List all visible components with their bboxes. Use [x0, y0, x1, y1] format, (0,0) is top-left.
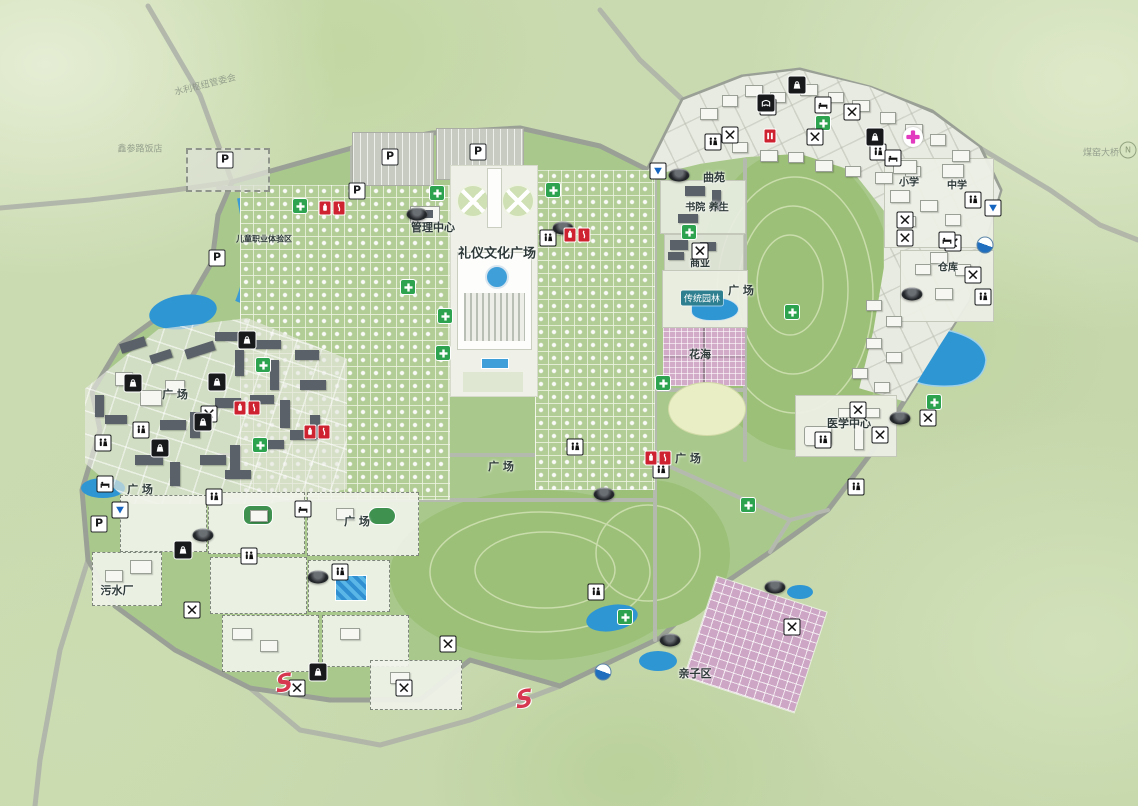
fire-safety-icon — [319, 201, 346, 216]
restroom-icon — [705, 134, 722, 151]
restaurant-icon — [807, 129, 824, 146]
restaurant-icon — [722, 127, 739, 144]
fire-safety-icon — [234, 401, 261, 416]
restaurant-icon — [850, 402, 867, 419]
hotel-icon — [939, 232, 956, 249]
building — [235, 350, 244, 376]
building — [874, 382, 890, 393]
building — [890, 190, 910, 203]
restroom-icon — [567, 439, 584, 456]
restaurant-icon — [784, 619, 801, 636]
axis-column — [487, 168, 502, 228]
service-parcel — [370, 660, 462, 710]
restaurant-icon — [897, 230, 914, 247]
restaurant-icon — [897, 212, 914, 229]
area-label: 礼仪文化广场 — [458, 243, 536, 262]
restroom-icon — [975, 289, 992, 306]
area-label: 广 场 — [344, 513, 370, 529]
shuttle-stop-icon — [669, 169, 690, 182]
service-parcel — [208, 492, 305, 554]
viewpoint-icon — [112, 502, 129, 519]
shop-icon — [309, 663, 328, 682]
building — [700, 108, 718, 120]
restroom-icon — [332, 564, 349, 581]
shuttle-stop-icon — [308, 571, 329, 584]
area-label: 广 场 — [488, 458, 514, 474]
parking-icon: P — [349, 183, 366, 200]
shuttle-stop-icon — [765, 581, 786, 594]
first-aid-icon — [437, 308, 453, 324]
shuttle-stop-icon — [890, 412, 911, 425]
shuttle-stop-icon — [407, 208, 428, 221]
building — [722, 95, 738, 107]
building — [815, 160, 833, 172]
shuttle-stop-icon — [594, 488, 615, 501]
building — [866, 300, 882, 311]
building — [732, 142, 748, 153]
building — [260, 640, 278, 652]
hospital-cross-icon — [903, 127, 923, 147]
area-label: 管理中心 — [411, 219, 455, 235]
shuttle-stop-icon — [193, 529, 214, 542]
restroom-icon — [206, 489, 223, 506]
water-gauge-icon — [595, 664, 612, 681]
ceremony-seating — [464, 293, 525, 341]
shop-icon — [208, 373, 227, 392]
first-aid-icon — [400, 279, 416, 295]
restaurant-icon — [692, 243, 709, 260]
area-label: 儿童职业体验区 — [236, 234, 292, 245]
parking-icon: P — [382, 149, 399, 166]
building — [788, 152, 804, 163]
parking-icon: P — [470, 144, 487, 161]
shop-icon — [151, 439, 170, 458]
shuttle-stop-icon — [660, 634, 681, 647]
shop-icon — [788, 76, 807, 95]
first-aid-icon — [655, 375, 671, 391]
restaurant-icon — [396, 680, 413, 697]
building — [952, 150, 970, 162]
building — [920, 200, 938, 212]
shop-icon — [866, 128, 885, 147]
lawn-circle — [668, 382, 746, 436]
compass-icon: N — [1120, 142, 1137, 159]
hotel-icon — [295, 501, 312, 518]
building — [170, 462, 180, 486]
theater-icon — [757, 94, 776, 113]
building — [232, 628, 252, 640]
building — [255, 340, 281, 349]
building — [130, 560, 152, 574]
area-label: 仓库 — [938, 259, 958, 274]
viewpoint-icon — [650, 163, 667, 180]
building — [685, 186, 705, 196]
axis-south-plaza — [463, 372, 523, 392]
restaurant-icon — [184, 602, 201, 619]
building — [105, 570, 123, 582]
building — [945, 214, 961, 226]
shop-icon — [194, 413, 213, 432]
area-label: 曲苑 — [703, 169, 725, 185]
garden-knot-east — [501, 184, 535, 218]
garden-knot-west — [456, 184, 490, 218]
building — [668, 252, 684, 260]
burial-plot-grid-east — [535, 170, 655, 490]
fire-safety-icon — [645, 451, 672, 466]
building — [886, 316, 902, 327]
area-label: 传统园林 — [681, 291, 723, 306]
building — [670, 240, 688, 250]
viewpoint-icon — [985, 200, 1002, 217]
first-aid-icon — [435, 345, 451, 361]
hotel-icon — [815, 97, 832, 114]
area-label: 煤窑大桥 — [1083, 146, 1119, 159]
shop-icon — [238, 331, 257, 350]
shuttle-stop-icon — [902, 288, 923, 301]
first-aid-icon — [252, 437, 268, 453]
restroom-icon — [848, 479, 865, 496]
area-label: 广 场 — [127, 481, 153, 497]
building — [160, 420, 186, 430]
s-curve-logo: S — [284, 683, 301, 711]
building — [760, 150, 778, 162]
area-label: 书院 养生 — [685, 199, 728, 214]
first-aid-icon — [255, 357, 271, 373]
restroom-icon — [241, 548, 258, 565]
first-aid-icon — [292, 198, 308, 214]
building — [215, 332, 239, 341]
building — [95, 395, 104, 417]
area-label: 广 场 — [162, 386, 188, 402]
ceremony-axis-complex — [450, 165, 538, 397]
first-aid-icon — [740, 497, 756, 513]
restaurant-icon — [965, 267, 982, 284]
parking-icon: P — [91, 516, 108, 533]
restroom-icon — [133, 422, 150, 439]
restroom-icon — [95, 435, 112, 452]
incense-station-icon — [764, 129, 777, 144]
building — [280, 400, 290, 428]
hotel-icon — [885, 150, 902, 167]
building — [866, 338, 882, 349]
shop-icon — [124, 374, 143, 393]
restroom-icon — [815, 432, 832, 449]
first-aid-icon — [926, 394, 942, 410]
building — [270, 360, 279, 390]
area-label: 亲子区 — [679, 665, 712, 681]
building — [300, 380, 326, 390]
area-label: 广 场 — [728, 282, 754, 298]
area-label: 鑫参路饭店 — [117, 142, 162, 155]
s-curve-logo: S — [524, 699, 541, 727]
main-memorial-hall — [457, 252, 532, 350]
parking-icon: P — [209, 250, 226, 267]
site-plan-map: 礼仪文化广场管理中心曲苑书院 养生商业传统园林花海广 场广 场广 场广 场广 场… — [0, 0, 1138, 806]
building — [915, 264, 931, 275]
building — [200, 455, 226, 465]
hotel-icon — [97, 476, 114, 493]
building — [140, 390, 162, 406]
pool-parcel — [308, 560, 390, 612]
fire-safety-icon — [564, 228, 591, 243]
building — [250, 510, 268, 522]
building — [935, 288, 953, 300]
area-label: 花海 — [689, 346, 711, 362]
restaurant-icon — [440, 636, 457, 653]
service-parcel — [210, 557, 307, 614]
sports-field — [368, 507, 396, 525]
first-aid-icon — [545, 182, 561, 198]
area-label: 广 场 — [675, 450, 701, 466]
restaurant-icon — [844, 104, 861, 121]
first-aid-icon — [784, 304, 800, 320]
area-label: 污水厂 — [101, 582, 134, 598]
restroom-icon — [965, 192, 982, 209]
restroom-icon — [588, 584, 605, 601]
building — [880, 112, 896, 124]
building — [930, 134, 946, 146]
water-gauge-icon — [977, 237, 994, 254]
fountain-circle — [485, 265, 509, 289]
building — [230, 445, 240, 471]
first-aid-icon — [617, 609, 633, 625]
fire-safety-icon — [304, 425, 331, 440]
building — [678, 214, 698, 223]
building — [845, 166, 861, 177]
first-aid-icon — [681, 224, 697, 240]
parking-icon: P — [217, 152, 234, 169]
building — [852, 368, 868, 379]
building — [295, 350, 319, 360]
building — [340, 628, 360, 640]
first-aid-icon — [429, 185, 445, 201]
building — [225, 470, 251, 479]
building — [105, 415, 127, 424]
building — [886, 352, 902, 363]
restaurant-icon — [872, 427, 889, 444]
service-parcel — [120, 495, 207, 552]
axis-pool — [481, 358, 509, 369]
area-label: 小学 — [899, 174, 919, 189]
area-label: 中学 — [947, 177, 967, 192]
shop-icon — [174, 541, 193, 560]
building — [875, 172, 893, 184]
restaurant-icon — [920, 410, 937, 427]
